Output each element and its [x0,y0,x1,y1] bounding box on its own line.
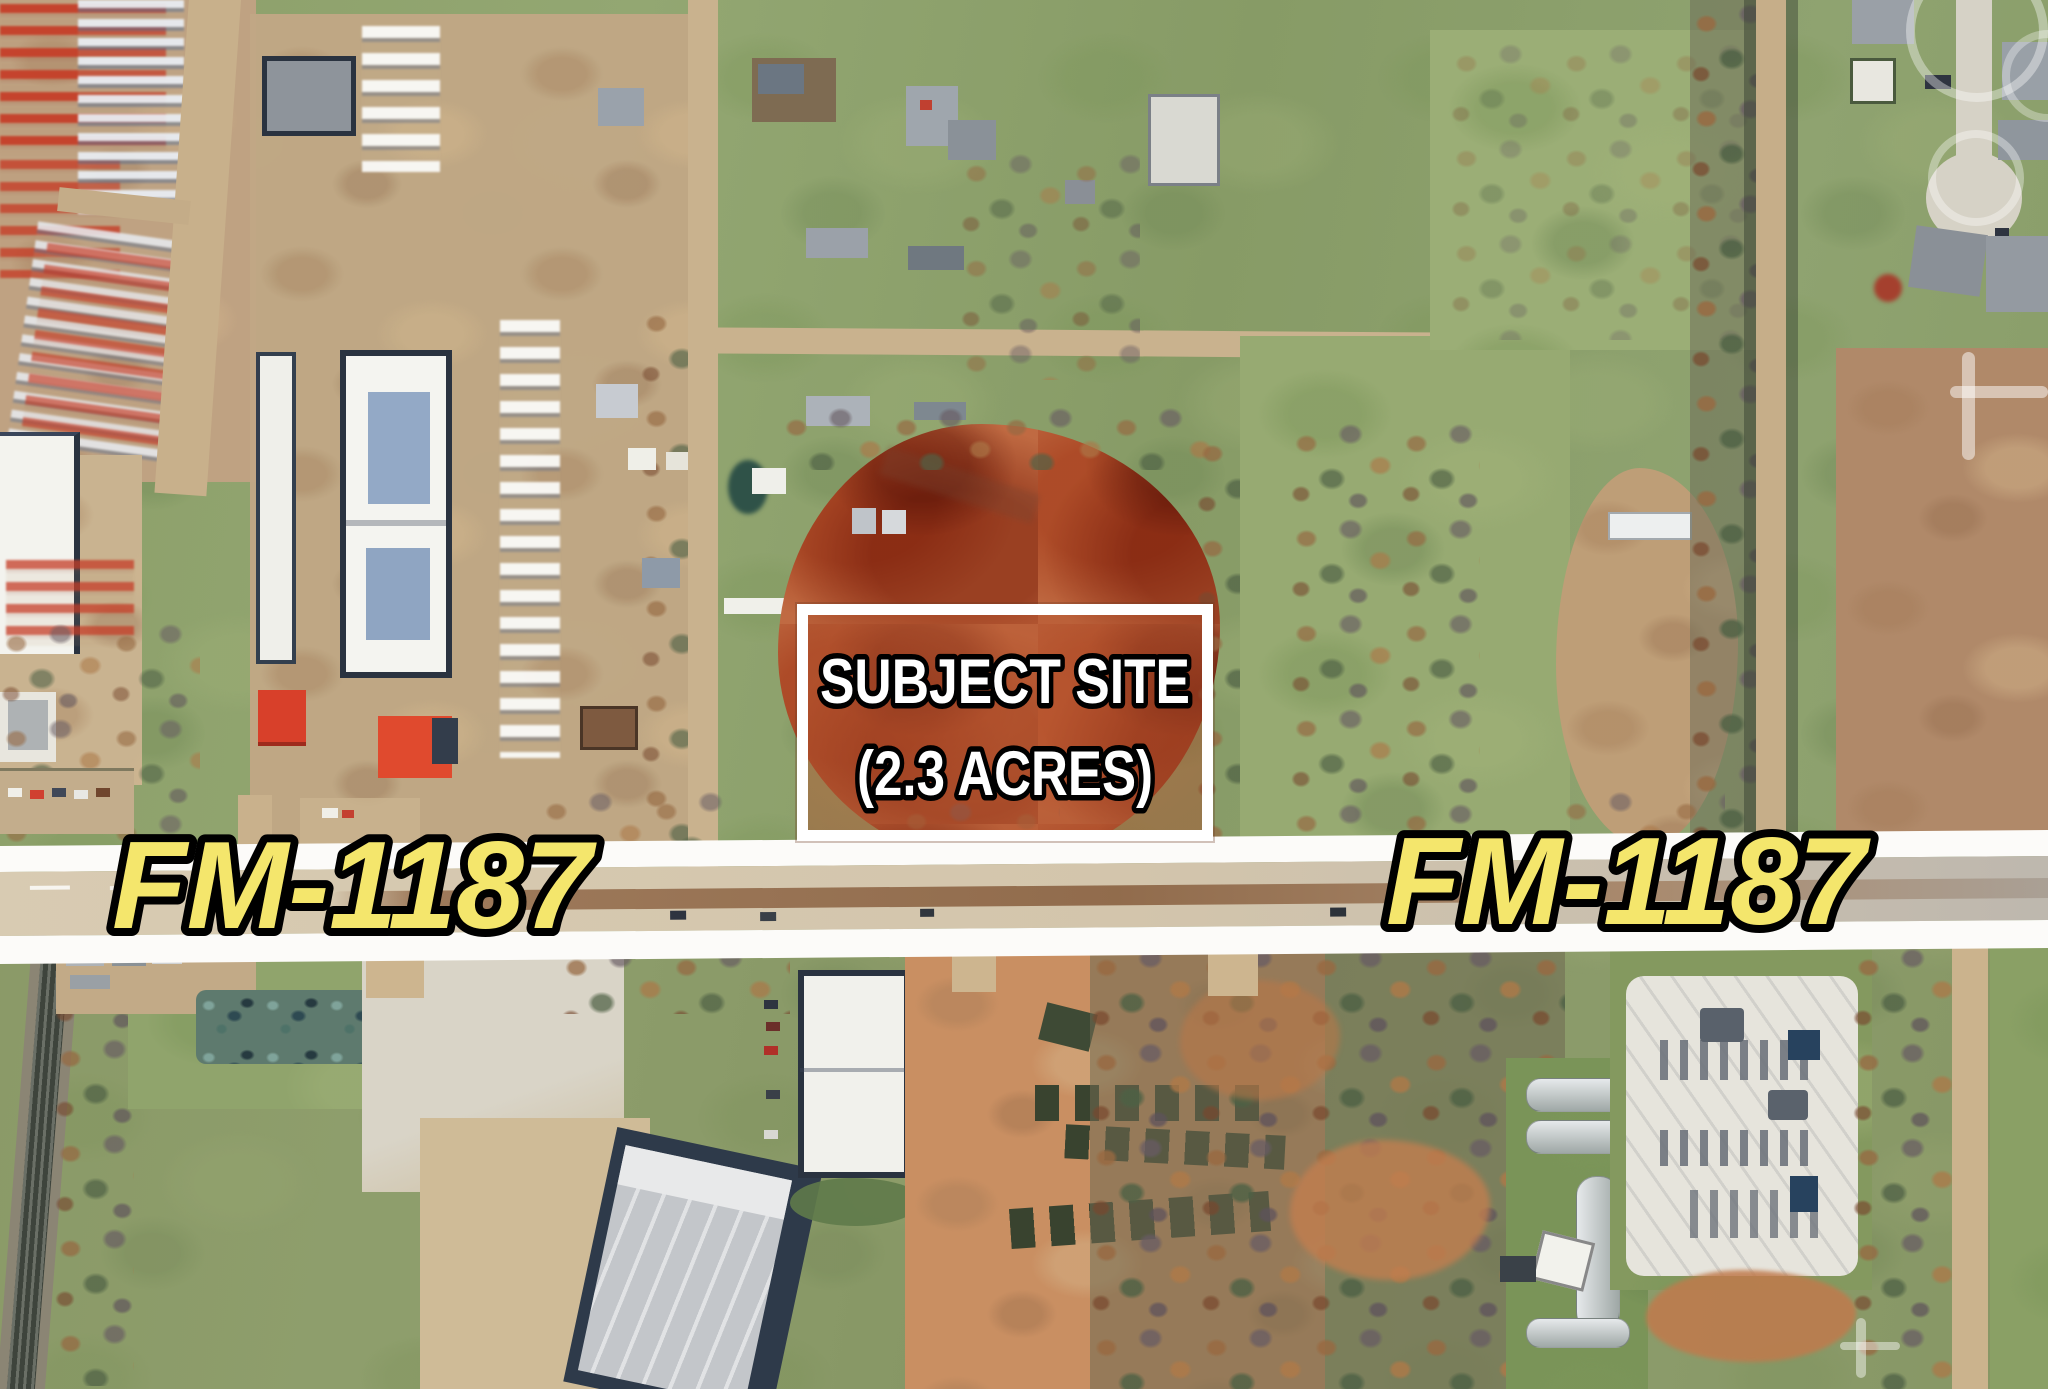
brown-field [1836,348,2048,853]
gray-truck [70,975,110,989]
road-vertical-right [1756,0,1786,862]
solar-panel [366,548,430,640]
power-pole-mark [1840,1342,1900,1350]
house-white [1850,58,1896,104]
house-gray-roof [596,384,638,418]
scrap-material-piles [196,990,378,1064]
parked-car [766,1090,780,1099]
house-roof [758,64,804,94]
control-shed [1790,1176,1818,1212]
parked-car [52,788,66,797]
large-roof-house [1908,225,1988,296]
control-shed [1788,1030,1820,1060]
far-right-green [1990,944,2048,1389]
parked-car [766,1022,780,1031]
house-gray-roof [642,558,680,588]
road-vertical-bottom-right [1952,944,1988,1389]
subject-site-label: SUBJECT SITE (2.3 ACRES) [808,615,1202,830]
watermark-bar-vertical [1962,352,1975,460]
subject-site-line2: (2.3 ACRES) [857,739,1153,809]
aerial-map: SUBJECT SITE (2.3 ACRES) FM-1187 FM-1187 [0,0,2048,1389]
long-white-building [256,352,296,664]
red-tree [1874,274,1902,302]
brown-house [580,706,638,750]
parked-car [74,790,88,799]
white-shed-long [1608,512,1692,540]
gray-shed [882,510,906,534]
road-tree-shadow [1744,0,1756,862]
subject-site-box: SUBJECT SITE (2.3 ACRES) [797,604,1213,841]
woods-column [1290,420,1480,850]
roof-divider [346,520,446,526]
rv-storage-row [500,320,560,758]
subject-site-line1: SUBJECT SITE [820,647,1190,717]
gray-roof-building [262,56,356,136]
road-tree-shadow [1786,0,1798,862]
dark-vehicle [1500,1256,1536,1282]
gray-shed [852,508,876,534]
road-label-fm1187-right: FM-1187 [1374,806,1884,956]
road-label-text-left: FM-1187 [112,817,597,955]
transformer [1768,1090,1808,1120]
road-label-fm1187-left: FM-1187 [100,810,610,960]
solar-panel [368,392,430,504]
trailer [908,246,964,270]
substation-equipment-row [1660,1130,1820,1166]
warehouse-roof-line [800,1068,908,1072]
car-on-road [670,911,686,920]
parked-car [764,1046,778,1055]
tree-cluster [960,150,1140,380]
transformer [1700,1008,1744,1042]
street-vertical [688,0,718,868]
road-label-text-right: FM-1187 [1386,813,1871,951]
watermark-bar-horizontal [1950,386,2048,398]
trailer [806,228,868,258]
watermark-circle [1928,130,2024,226]
white-roof-house [752,468,786,494]
house-gray-roof [1852,0,1914,44]
car-on-road [760,912,776,921]
parked-car [30,790,44,799]
white-shed [628,448,656,470]
large-roof-house [1986,236,2048,312]
steel-material-stacks [78,0,184,214]
white-shed [666,452,688,470]
greenhouse [1526,1318,1630,1348]
dark-roof-wing [432,718,458,764]
parked-car [764,1130,778,1139]
trailer-parking-row [362,26,440,172]
lane-dash [30,886,70,890]
parked-car [8,788,22,797]
red-roof-building [258,690,306,746]
house-gray-roof [598,88,644,126]
tree-band-above-dirt [780,404,1220,470]
driveway-stub [1208,952,1258,996]
car-on-road [920,909,934,917]
parked-car [96,788,110,797]
car-on-road [1330,907,1346,916]
parked-car [764,1000,778,1009]
white-house [1148,94,1220,186]
red-truck [920,100,932,110]
white-warehouse [798,970,910,1178]
